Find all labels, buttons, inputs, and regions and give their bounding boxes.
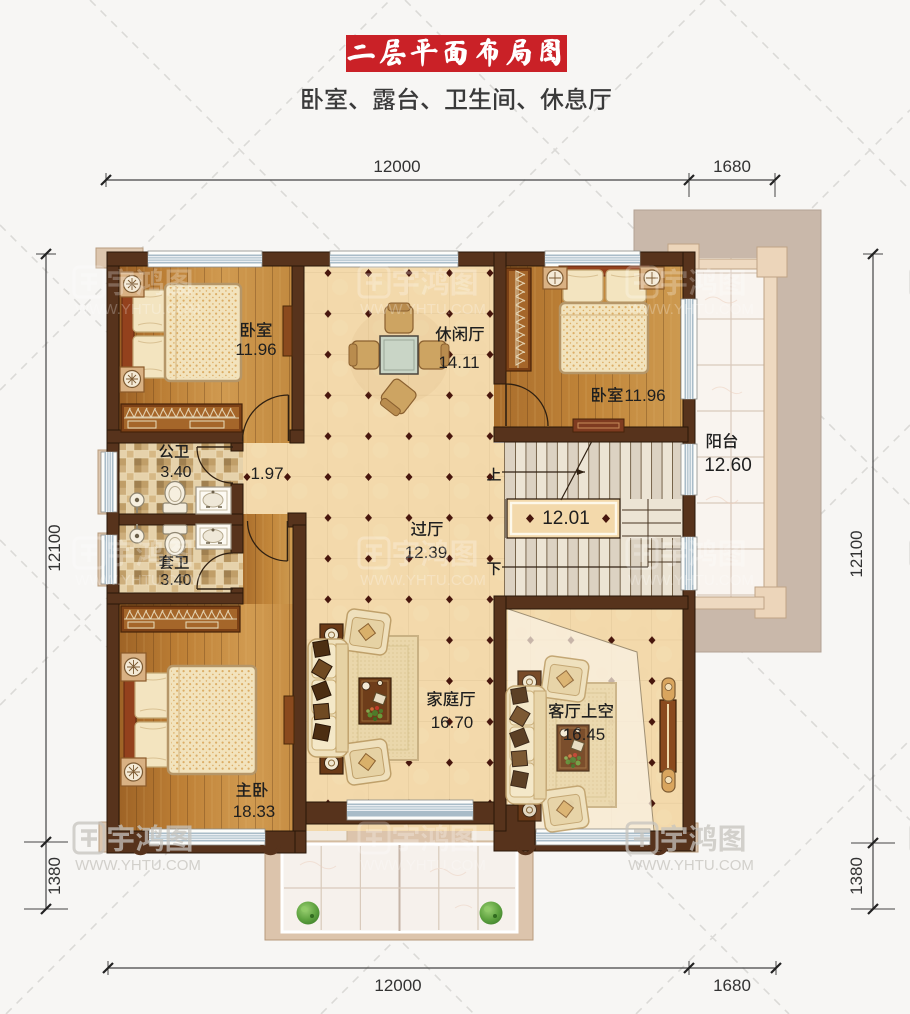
svg-text:12100: 12100 xyxy=(847,530,866,577)
svg-text:1.97: 1.97 xyxy=(250,464,283,483)
svg-text:1680: 1680 xyxy=(713,157,751,176)
svg-text:12.60: 12.60 xyxy=(704,455,752,476)
svg-text:16.45: 16.45 xyxy=(563,725,606,744)
svg-text:11.96: 11.96 xyxy=(624,386,665,405)
svg-text:12100: 12100 xyxy=(45,524,64,571)
svg-text:16.70: 16.70 xyxy=(431,713,474,732)
svg-text:18.33: 18.33 xyxy=(233,802,276,821)
svg-text:WWW.YHTU.COM: WWW.YHTU.COM xyxy=(75,857,201,874)
svg-text:WWW.YHTU.COM: WWW.YHTU.COM xyxy=(75,301,201,318)
svg-text:WWW.YHTU.COM: WWW.YHTU.COM xyxy=(360,857,486,874)
svg-text:WWW.YHTU.COM: WWW.YHTU.COM xyxy=(75,572,201,589)
svg-text:12.01: 12.01 xyxy=(542,508,590,529)
svg-text:11.96: 11.96 xyxy=(235,340,276,359)
svg-text:12000: 12000 xyxy=(373,157,420,176)
svg-text:1380: 1380 xyxy=(847,857,866,895)
svg-text:1380: 1380 xyxy=(45,857,64,895)
svg-text:14.11: 14.11 xyxy=(438,353,479,372)
svg-text:WWW.YHTU.COM: WWW.YHTU.COM xyxy=(628,572,754,589)
svg-text:WWW.YHTU.COM: WWW.YHTU.COM xyxy=(628,857,754,874)
svg-text:WWW.YHTU.COM: WWW.YHTU.COM xyxy=(360,572,486,589)
svg-text:WWW.YHTU.COM: WWW.YHTU.COM xyxy=(628,301,754,318)
svg-text:WWW.YHTU.COM: WWW.YHTU.COM xyxy=(360,301,486,318)
svg-text:1680: 1680 xyxy=(713,976,751,995)
svg-text:3.40: 3.40 xyxy=(160,464,191,481)
svg-text:12000: 12000 xyxy=(374,976,421,995)
